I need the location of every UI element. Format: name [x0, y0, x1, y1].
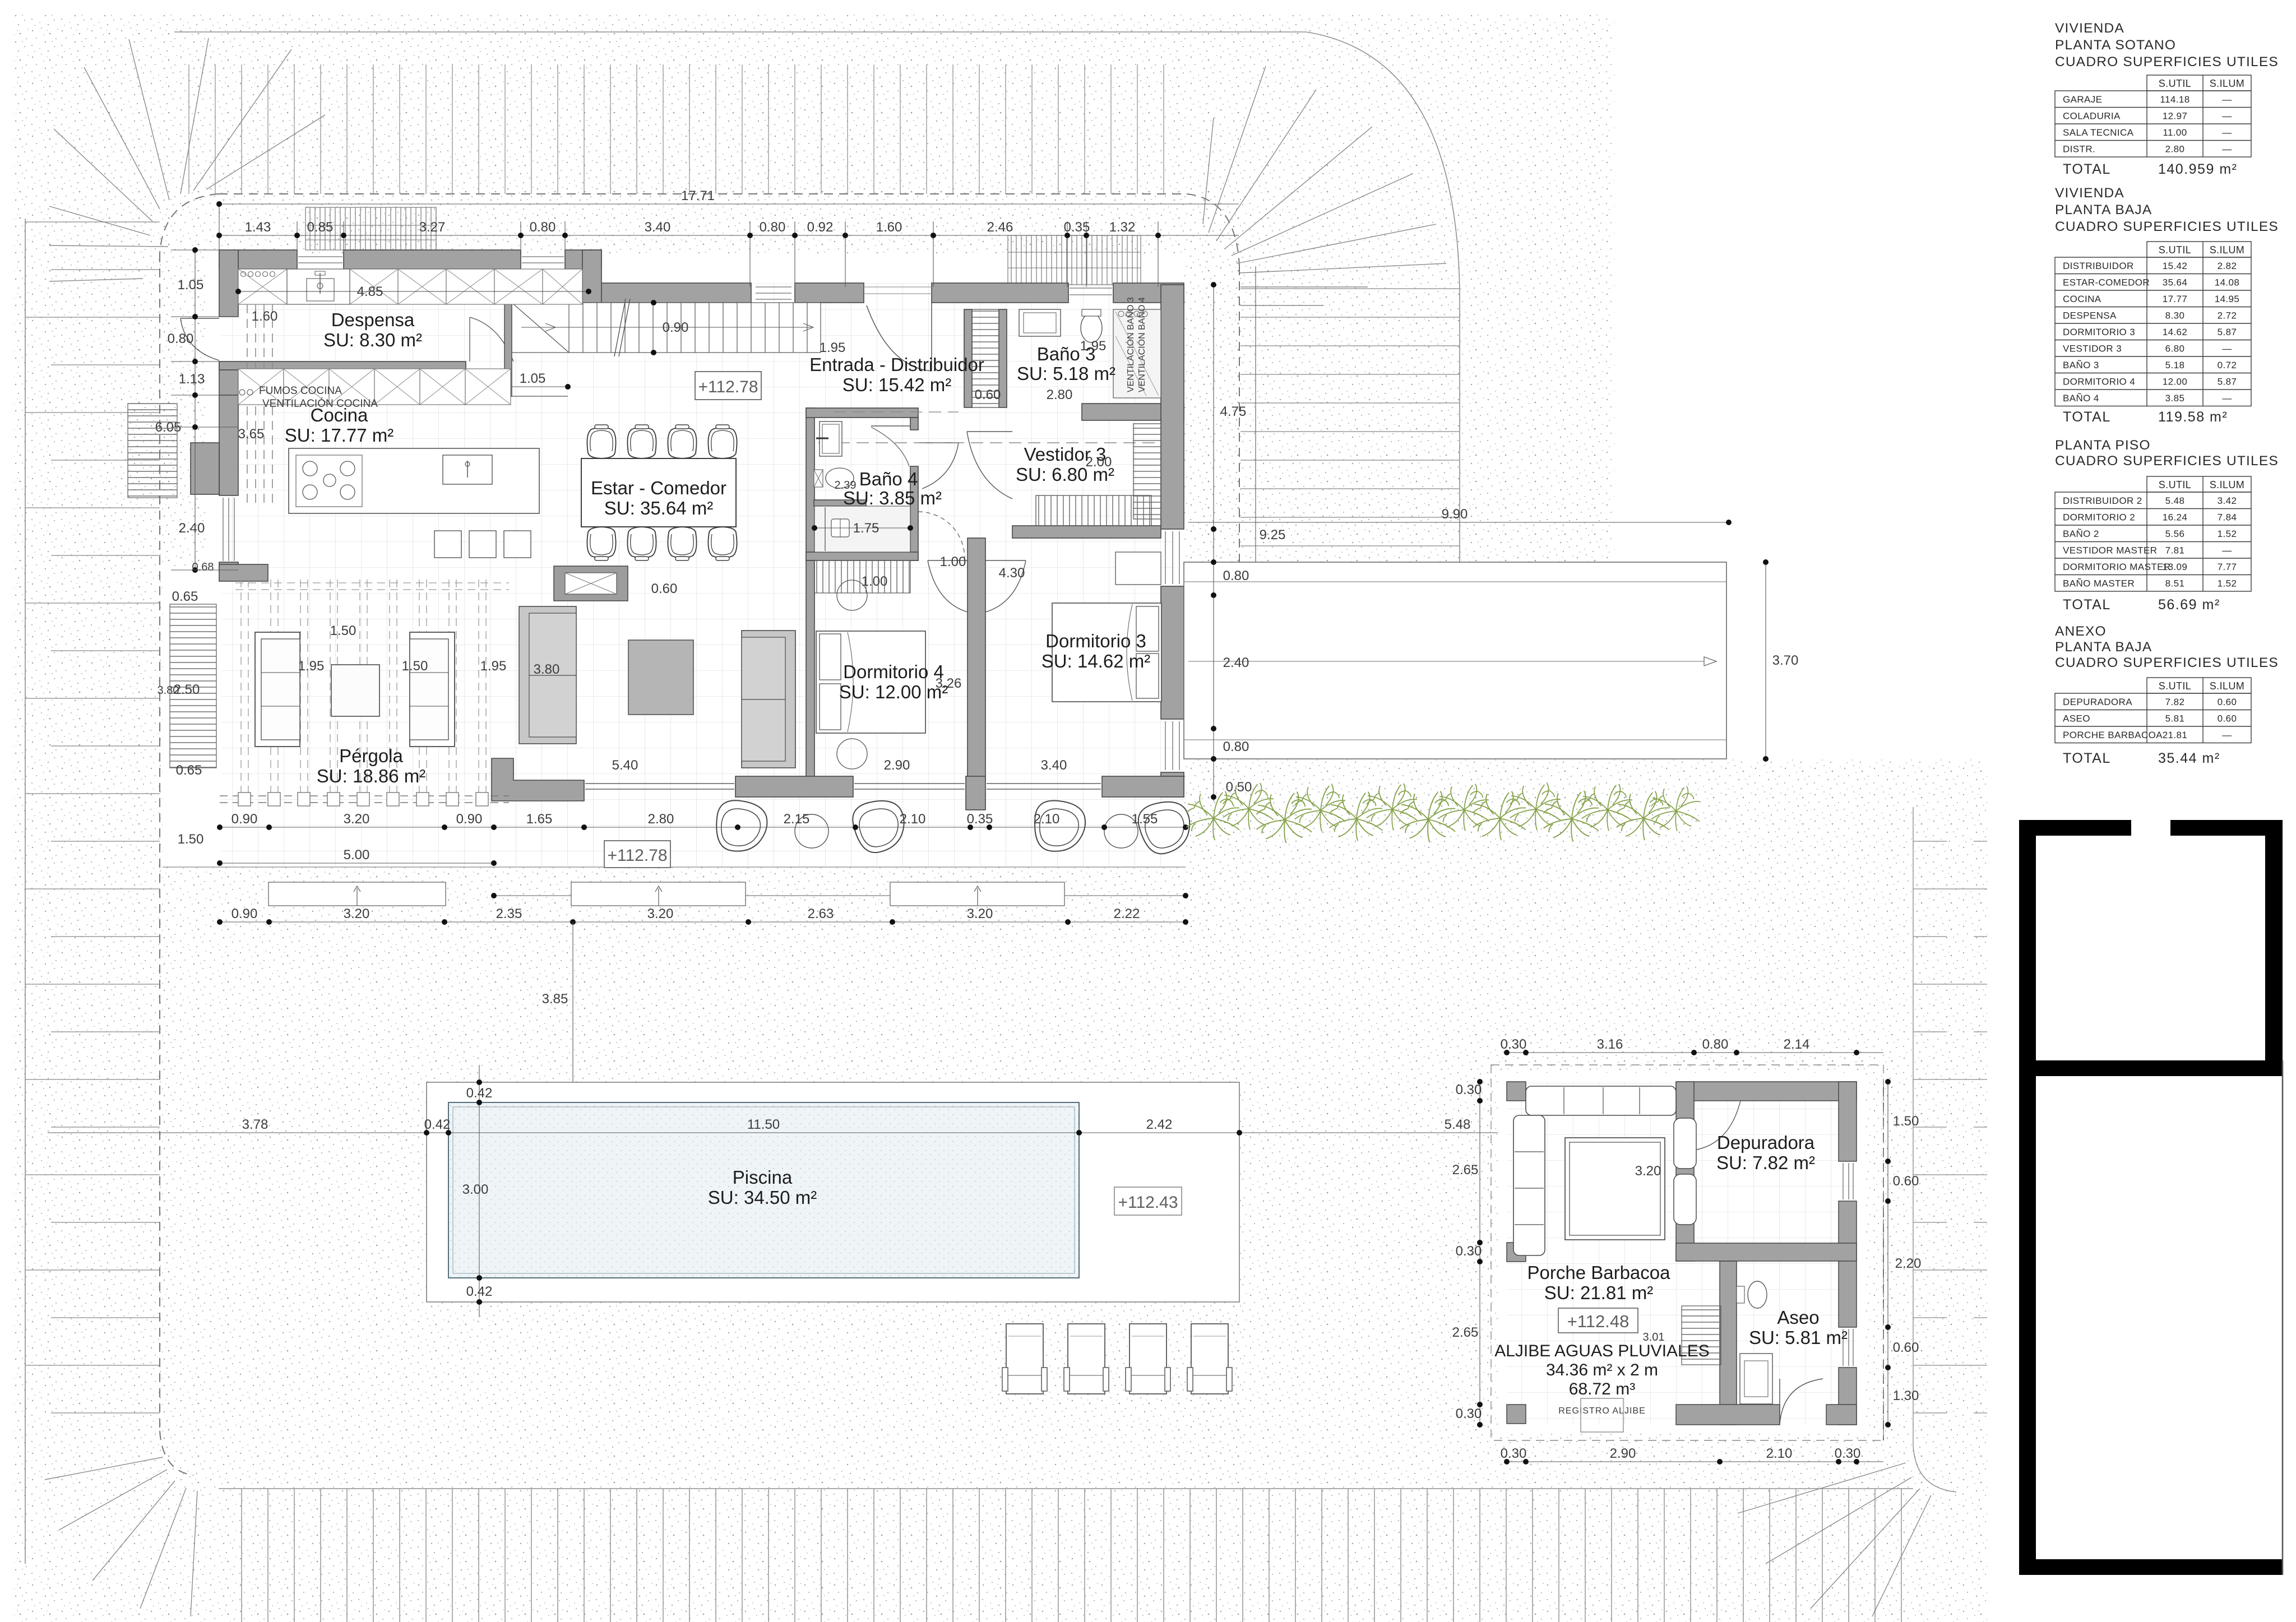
svg-text:2.42: 2.42: [1146, 1117, 1173, 1132]
svg-text:1.32: 1.32: [1109, 220, 1136, 235]
svg-text:DESPENSA: DESPENSA: [2063, 311, 2117, 321]
svg-text:1.00: 1.00: [862, 574, 888, 589]
svg-text:PLANTA PISO: PLANTA PISO: [2055, 438, 2151, 453]
svg-text:SU: 5.18 m²: SU: 5.18 m²: [1017, 363, 1115, 384]
svg-text:56.69 m²: 56.69 m²: [2158, 597, 2220, 613]
svg-text:ALJIBE AGUAS PLUVIALES: ALJIBE AGUAS PLUVIALES: [1494, 1342, 1710, 1360]
svg-text:14.62: 14.62: [2163, 327, 2188, 337]
svg-text:—: —: [2222, 127, 2232, 138]
svg-text:Estar - Comedor: Estar - Comedor: [591, 478, 726, 498]
svg-text:0.60: 0.60: [975, 387, 1001, 402]
svg-text:0.30: 0.30: [1835, 1446, 1861, 1461]
svg-text:VIVIENDA: VIVIENDA: [2055, 21, 2124, 36]
svg-text:DORMITORIO MASTER: DORMITORIO MASTER: [2063, 562, 2171, 572]
svg-text:Dormitorio 4: Dormitorio 4: [843, 661, 944, 682]
svg-text:PLANTA BAJA: PLANTA BAJA: [2055, 202, 2152, 217]
svg-text:16.24: 16.24: [2163, 512, 2188, 523]
svg-text:35.44 m²: 35.44 m²: [2158, 750, 2220, 766]
svg-text:0.90: 0.90: [232, 906, 258, 921]
svg-text:TOTAL: TOTAL: [2063, 161, 2111, 177]
svg-text:3.26: 3.26: [936, 676, 962, 691]
svg-text:3.16: 3.16: [1597, 1037, 1623, 1052]
svg-text:2.10: 2.10: [1034, 812, 1060, 827]
svg-text:Cocina: Cocina: [311, 405, 368, 425]
svg-text:0.60: 0.60: [2218, 697, 2237, 707]
svg-text:SU: 35.64 m²: SU: 35.64 m²: [604, 498, 713, 518]
svg-text:SU: 12.00 m²: SU: 12.00 m²: [839, 682, 948, 702]
svg-text:2.90: 2.90: [884, 758, 910, 773]
svg-text:0.80: 0.80: [1223, 739, 1249, 754]
svg-text:GARAJE: GARAJE: [2063, 94, 2102, 105]
svg-text:5.18: 5.18: [2165, 360, 2185, 370]
svg-text:0.60: 0.60: [2218, 713, 2237, 724]
svg-text:REGISTRO ALJIBE: REGISTRO ALJIBE: [1558, 1406, 1645, 1416]
svg-text:Pérgola: Pérgola: [339, 745, 403, 766]
svg-text:1.50: 1.50: [178, 832, 204, 847]
svg-text:7.81: 7.81: [2165, 545, 2185, 556]
svg-text:5.00: 5.00: [344, 847, 370, 863]
svg-text:0.80: 0.80: [168, 331, 194, 346]
svg-text:14.08: 14.08: [2215, 277, 2240, 288]
svg-text:4.30: 4.30: [999, 566, 1025, 581]
svg-text:+112.43: +112.43: [1118, 1193, 1178, 1212]
svg-text:15.42: 15.42: [2163, 261, 2188, 271]
svg-text:DORMITORIO 2: DORMITORIO 2: [2063, 512, 2135, 523]
svg-text:SU: 3.85 m²: SU: 3.85 m²: [843, 488, 942, 508]
svg-text:2.63: 2.63: [808, 906, 834, 921]
svg-text:1.30: 1.30: [1893, 1388, 1919, 1403]
svg-text:SU: 7.82 m²: SU: 7.82 m²: [1716, 1152, 1815, 1173]
svg-text:0.35: 0.35: [967, 812, 993, 827]
svg-text:0.90: 0.90: [232, 812, 258, 827]
svg-text:ESTAR-COMEDOR: ESTAR-COMEDOR: [2063, 277, 2150, 288]
svg-text:1.65: 1.65: [526, 812, 553, 827]
svg-text:0.42: 0.42: [424, 1117, 451, 1132]
svg-text:14.95: 14.95: [2215, 294, 2240, 304]
svg-text:1.95: 1.95: [1080, 339, 1107, 354]
svg-text:BAÑO 4: BAÑO 4: [2063, 393, 2099, 404]
svg-text:PLANTA BAJA: PLANTA BAJA: [2055, 639, 2152, 655]
svg-text:0.80: 0.80: [530, 220, 556, 235]
svg-text:S.UTIL: S.UTIL: [2159, 78, 2191, 89]
svg-text:PLANTA SOTANO: PLANTA SOTANO: [2055, 38, 2176, 53]
svg-text:5.87: 5.87: [2218, 377, 2237, 387]
svg-text:0.60: 0.60: [651, 581, 678, 596]
svg-text:13.09: 13.09: [2163, 562, 2188, 572]
svg-text:—: —: [2222, 393, 2232, 404]
svg-text:—: —: [2222, 545, 2232, 556]
svg-text:BAÑO 3: BAÑO 3: [2063, 360, 2099, 370]
svg-text:12.97: 12.97: [2163, 111, 2188, 122]
svg-text:2.10: 2.10: [1766, 1446, 1793, 1461]
svg-text:0.50: 0.50: [1226, 780, 1252, 795]
svg-text:SU: 34.50 m²: SU: 34.50 m²: [708, 1187, 817, 1208]
svg-text:8.30: 8.30: [2165, 311, 2185, 321]
svg-text:SU: 14.62 m²: SU: 14.62 m²: [1041, 651, 1150, 671]
svg-text:2.46: 2.46: [987, 220, 1013, 235]
svg-text:ASEO: ASEO: [2063, 713, 2090, 724]
svg-text:3.80: 3.80: [534, 662, 560, 677]
svg-text:Despensa: Despensa: [331, 309, 415, 330]
svg-text:9.25: 9.25: [1260, 527, 1286, 543]
svg-text:VESTIDOR 3: VESTIDOR 3: [2063, 344, 2122, 354]
svg-text:DORMITORIO 4: DORMITORIO 4: [2063, 377, 2135, 387]
svg-text:TOTAL: TOTAL: [2063, 597, 2111, 613]
svg-text:SU: 8.30 m²: SU: 8.30 m²: [323, 330, 422, 350]
svg-text:SU: 21.81 m²: SU: 21.81 m²: [1544, 1282, 1653, 1303]
svg-text:3.78: 3.78: [242, 1117, 269, 1132]
svg-text:TOTAL: TOTAL: [2063, 750, 2111, 766]
svg-text:0.60: 0.60: [1893, 1174, 1919, 1189]
svg-text:S.ILUM: S.ILUM: [2210, 680, 2244, 692]
svg-text:SU: 5.81 m²: SU: 5.81 m²: [1749, 1327, 1848, 1348]
svg-text:0.35: 0.35: [1064, 220, 1090, 235]
svg-text:5.81: 5.81: [2165, 713, 2185, 724]
svg-text:2.15: 2.15: [784, 812, 810, 827]
svg-text:2.14: 2.14: [1784, 1037, 1810, 1052]
svg-text:CUADRO SUPERFICIES UTILES: CUADRO SUPERFICIES UTILES: [2055, 453, 2279, 469]
svg-text:1.05: 1.05: [520, 371, 546, 386]
svg-text:Depuradora: Depuradora: [1717, 1132, 1815, 1153]
svg-text:0.65: 0.65: [176, 763, 202, 778]
svg-text:1.13: 1.13: [179, 372, 205, 387]
svg-text:CUADRO SUPERFICIES UTILES: CUADRO SUPERFICIES UTILES: [2055, 219, 2279, 234]
svg-text:DEPURADORA: DEPURADORA: [2063, 697, 2132, 707]
svg-text:0.90: 0.90: [663, 320, 689, 335]
svg-text:SU: 17.77 m²: SU: 17.77 m²: [285, 425, 394, 446]
svg-text:SU: 15.42 m²: SU: 15.42 m²: [843, 374, 951, 395]
svg-text:1.95: 1.95: [820, 340, 846, 355]
svg-text:PORCHE BARBACOA: PORCHE BARBACOA: [2063, 730, 2163, 740]
svg-text:1.50: 1.50: [330, 623, 357, 638]
svg-text:1.52: 1.52: [2218, 578, 2237, 589]
svg-text:5.56: 5.56: [2165, 529, 2185, 539]
svg-text:0.72: 0.72: [2218, 360, 2237, 370]
svg-text:1.60: 1.60: [252, 309, 278, 324]
svg-text:ANEXO: ANEXO: [2055, 624, 2107, 639]
svg-text:SALA TECNICA: SALA TECNICA: [2063, 127, 2134, 138]
svg-text:1.75: 1.75: [853, 521, 879, 536]
svg-text:S.ILUM: S.ILUM: [2210, 479, 2244, 490]
svg-text:0.92: 0.92: [807, 220, 834, 235]
svg-text:5.48: 5.48: [1445, 1117, 1471, 1132]
svg-text:4.85: 4.85: [357, 284, 383, 299]
svg-text:BAÑO 2: BAÑO 2: [2063, 529, 2099, 539]
svg-text:3.40: 3.40: [645, 220, 671, 235]
svg-text:S.ILUM: S.ILUM: [2210, 78, 2244, 89]
svg-text:S.UTIL: S.UTIL: [2159, 244, 2191, 256]
svg-text:DISTRIBUIDOR 2: DISTRIBUIDOR 2: [2063, 495, 2142, 506]
svg-text:Entrada - Distribuidor: Entrada - Distribuidor: [809, 354, 984, 375]
svg-text:34.36 m² x 2 m: 34.36 m² x 2 m: [1546, 1361, 1658, 1379]
svg-text:DISTRIBUIDOR: DISTRIBUIDOR: [2063, 261, 2134, 271]
svg-text:3.20: 3.20: [1635, 1164, 1661, 1179]
svg-text:3.00: 3.00: [462, 1182, 489, 1197]
svg-text:3.65: 3.65: [238, 427, 265, 442]
svg-text:0.80: 0.80: [1223, 568, 1249, 583]
svg-text:S.UTIL: S.UTIL: [2159, 479, 2191, 490]
svg-text:CUADRO SUPERFICIES UTILES: CUADRO SUPERFICIES UTILES: [2055, 54, 2279, 69]
svg-text:Porche Barbacoa: Porche Barbacoa: [1527, 1262, 1671, 1283]
svg-text:1.05: 1.05: [178, 277, 204, 293]
svg-text:9.90: 9.90: [1442, 507, 1468, 522]
svg-text:0.30: 0.30: [1456, 1406, 1482, 1421]
svg-text:119.58 m²: 119.58 m²: [2158, 409, 2228, 425]
svg-text:3.01: 3.01: [1643, 1331, 1665, 1343]
svg-text:6.80: 6.80: [2165, 344, 2185, 354]
svg-text:Aseo: Aseo: [1777, 1307, 1819, 1328]
svg-text:2.20: 2.20: [1895, 1256, 1922, 1271]
svg-text:2.22: 2.22: [1114, 906, 1140, 921]
svg-text:5.40: 5.40: [612, 758, 638, 773]
svg-text:Dormitorio 3: Dormitorio 3: [1045, 631, 1146, 651]
svg-text:COCINA: COCINA: [2063, 294, 2101, 304]
svg-text:2.65: 2.65: [1452, 1162, 1479, 1178]
svg-text:3.85: 3.85: [2165, 393, 2185, 404]
svg-text:2.39: 2.39: [835, 479, 857, 492]
svg-text:0.80: 0.80: [760, 220, 786, 235]
svg-text:0.42: 0.42: [466, 1086, 493, 1101]
svg-text:S.ILUM: S.ILUM: [2210, 244, 2244, 256]
svg-text:5.48: 5.48: [2165, 495, 2185, 506]
svg-text:2.80: 2.80: [2165, 144, 2185, 155]
svg-text:140.959 m²: 140.959 m²: [2158, 161, 2237, 177]
svg-text:7.84: 7.84: [2218, 512, 2237, 523]
svg-text:8.51: 8.51: [2165, 578, 2185, 589]
svg-text:2.72: 2.72: [2218, 311, 2237, 321]
svg-text:2.80: 2.80: [648, 812, 674, 827]
svg-text:0.60: 0.60: [1893, 1340, 1919, 1355]
svg-text:0.68: 0.68: [192, 561, 214, 573]
svg-text:2.40: 2.40: [179, 521, 205, 536]
svg-text:DISTR.: DISTR.: [2063, 144, 2095, 155]
svg-text:3.20: 3.20: [967, 906, 993, 921]
svg-text:11.00: 11.00: [2163, 127, 2187, 138]
svg-text:DORMITORIO 3: DORMITORIO 3: [2063, 327, 2135, 337]
svg-text:1.00: 1.00: [940, 554, 966, 569]
svg-text:3.20: 3.20: [344, 906, 370, 921]
svg-text:2.65: 2.65: [1452, 1325, 1479, 1340]
svg-text:3.27: 3.27: [419, 220, 446, 235]
svg-text:TOTAL: TOTAL: [2063, 409, 2111, 425]
svg-text:VIVIENDA: VIVIENDA: [2055, 186, 2124, 201]
svg-text:1.43: 1.43: [245, 220, 271, 235]
svg-text:2.40: 2.40: [1223, 655, 1249, 670]
svg-text:Piscina: Piscina: [733, 1167, 793, 1188]
svg-text:3.85: 3.85: [542, 991, 568, 1007]
svg-text:2.90: 2.90: [1610, 1446, 1636, 1461]
svg-text:1.50: 1.50: [1893, 1114, 1919, 1129]
svg-text:0.30: 0.30: [1456, 1082, 1482, 1097]
svg-text:SU: 18.86 m²: SU: 18.86 m²: [317, 766, 425, 786]
svg-text:3.20: 3.20: [647, 906, 674, 921]
svg-text:—: —: [2222, 344, 2232, 354]
svg-text:Baño 4: Baño 4: [859, 469, 918, 489]
svg-text:5.87: 5.87: [2218, 327, 2237, 337]
svg-text:0.90: 0.90: [456, 812, 483, 827]
svg-text:0.80: 0.80: [1702, 1037, 1729, 1052]
svg-text:—: —: [2222, 111, 2232, 122]
svg-text:2.10: 2.10: [900, 812, 926, 827]
svg-text:17.71: 17.71: [681, 188, 715, 203]
svg-text:114.18: 114.18: [2160, 94, 2189, 105]
svg-text:12.00: 12.00: [2163, 377, 2188, 387]
svg-text:1.60: 1.60: [876, 220, 902, 235]
svg-text:3.70: 3.70: [1772, 653, 1799, 668]
svg-text:68.72 m³: 68.72 m³: [1569, 1380, 1635, 1398]
svg-text:+112.78: +112.78: [607, 846, 667, 865]
svg-text:3.80: 3.80: [158, 684, 179, 697]
svg-text:0.30: 0.30: [1456, 1244, 1482, 1259]
svg-text:—: —: [2222, 144, 2232, 155]
svg-text:—: —: [2222, 94, 2232, 105]
svg-text:2.80: 2.80: [1047, 387, 1073, 402]
svg-text:2.35: 2.35: [496, 906, 522, 921]
svg-text:0.42: 0.42: [466, 1284, 493, 1299]
svg-text:17.77: 17.77: [2163, 294, 2188, 304]
svg-text:0.30: 0.30: [1501, 1037, 1527, 1052]
svg-text:7.77: 7.77: [2218, 562, 2237, 572]
svg-text:1.52: 1.52: [2218, 529, 2237, 539]
svg-text:CUADRO SUPERFICIES UTILES: CUADRO SUPERFICIES UTILES: [2055, 655, 2279, 670]
svg-text:2.00: 2.00: [1086, 455, 1112, 470]
svg-text:BAÑO MASTER: BAÑO MASTER: [2063, 578, 2135, 589]
svg-text:0.65: 0.65: [172, 589, 198, 604]
svg-text:—: —: [2222, 730, 2232, 740]
svg-text:1.50: 1.50: [402, 659, 428, 674]
svg-text:11.50: 11.50: [747, 1117, 780, 1132]
svg-text:1.95: 1.95: [480, 659, 507, 674]
svg-text:3.40: 3.40: [1041, 758, 1067, 773]
svg-text:7.82: 7.82: [2165, 697, 2185, 707]
svg-text:1.55: 1.55: [1132, 812, 1158, 827]
svg-text:21.81: 21.81: [2163, 730, 2188, 740]
svg-text:COLADURIA: COLADURIA: [2063, 111, 2121, 122]
svg-text:VESTIDOR MASTER: VESTIDOR MASTER: [2063, 545, 2157, 556]
svg-text:0.85: 0.85: [307, 220, 334, 235]
svg-text:4.75: 4.75: [1220, 404, 1247, 419]
svg-text:+112.78: +112.78: [698, 378, 758, 396]
svg-text:1.95: 1.95: [298, 659, 325, 674]
svg-text:S.UTIL: S.UTIL: [2159, 680, 2191, 692]
svg-text:+112.48: +112.48: [1567, 1311, 1630, 1331]
svg-text:0.30: 0.30: [1501, 1446, 1527, 1461]
svg-text:35.64: 35.64: [2163, 277, 2188, 288]
svg-text:2.82: 2.82: [2218, 261, 2237, 271]
svg-text:FUMOS COCINA: FUMOS COCINA: [259, 385, 342, 397]
svg-text:3.20: 3.20: [344, 812, 370, 827]
svg-text:3.42: 3.42: [2218, 495, 2237, 506]
